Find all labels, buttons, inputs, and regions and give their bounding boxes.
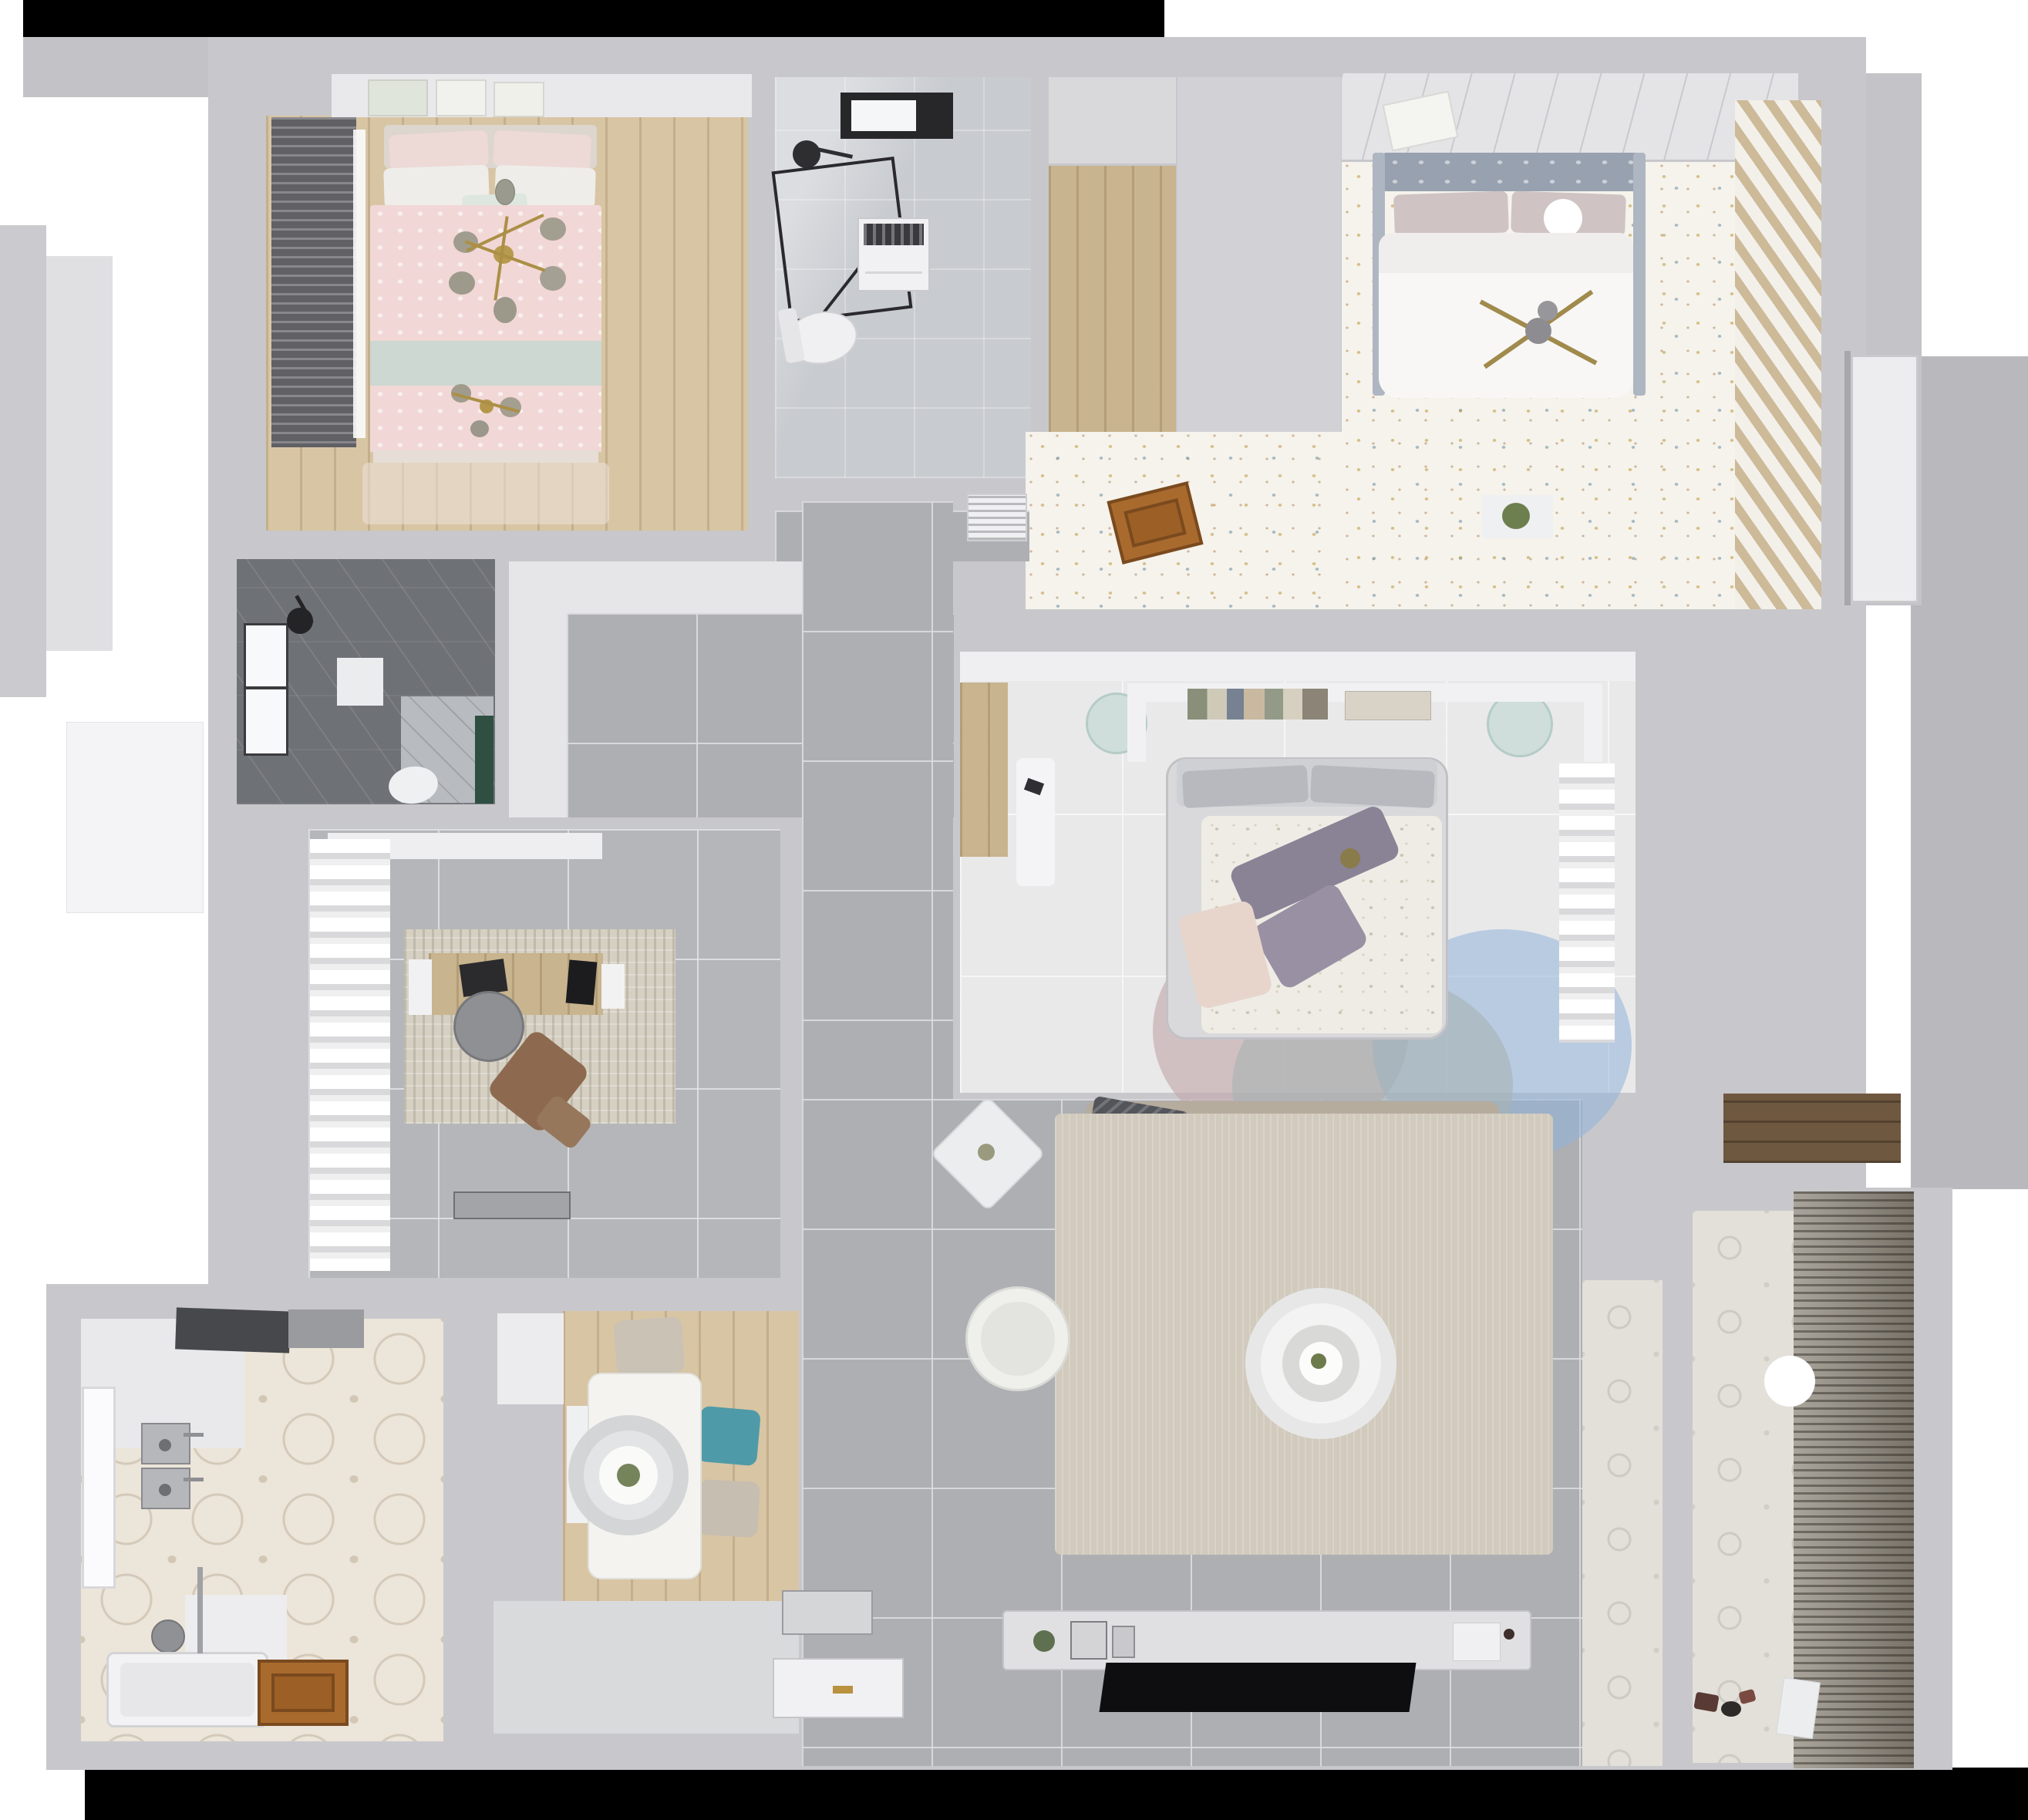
bedroom2-plant [1502, 503, 1530, 529]
backdrop-right [1911, 356, 2028, 1189]
bedroom3-desk [1016, 758, 1055, 886]
chandelier1-bulb-2 [540, 217, 566, 241]
bedroom2-rail-right [1633, 153, 1646, 396]
dining-chair-teal [696, 1406, 761, 1467]
bedroom1-window-blinds [271, 117, 356, 447]
balcony-easel [1776, 1677, 1821, 1739]
bathroom2-window-bar [244, 686, 288, 689]
living-coffee-table-plant [1311, 1353, 1326, 1369]
bathroom3-door [258, 1660, 349, 1726]
bedroom2-ball-lamp [1544, 199, 1582, 238]
living-console-items [1453, 1623, 1501, 1661]
balcony-ceiling-light [1764, 1356, 1815, 1407]
bathroom2-shelf [337, 658, 383, 706]
balcony-toy-2 [1721, 1701, 1741, 1717]
entry-doormat [782, 1590, 873, 1635]
chandelier2-bulb-3 [470, 420, 489, 437]
bathroom1-skylight-glass [851, 100, 916, 131]
living-tv-panel [1100, 1663, 1417, 1712]
living-console-frame-1 [1070, 1621, 1107, 1660]
bedroom3-gold-sprig [1340, 848, 1360, 868]
closet-upper-ceiling [1049, 77, 1176, 163]
bathroom3-bathtub-inner [120, 1663, 254, 1717]
living-console-frame-2 [1112, 1626, 1135, 1658]
bathroom1-shower-head [793, 140, 820, 168]
bathroom2-window [244, 623, 288, 756]
border-band-top [23, 0, 1164, 37]
chandelier1-bulb-6 [494, 297, 517, 323]
bathroom3-window [82, 1387, 116, 1589]
closet-floor [1049, 166, 1176, 455]
bathroom3-knob [151, 1619, 185, 1653]
bedroom1-art-frame-2 [436, 79, 487, 116]
living-console-bottle [1504, 1629, 1514, 1640]
study-monitor [566, 960, 598, 1006]
bathroom3-basin-2-drain [159, 1484, 171, 1496]
dining-cabinet [497, 1313, 564, 1404]
living-armchair-seat [981, 1302, 1055, 1376]
bedroom2-fan-hub-2 [1538, 301, 1558, 321]
study-desk-return [601, 964, 625, 1009]
border-band-bottom [85, 1768, 2028, 1820]
bedroom2-duvet-fold [1379, 233, 1633, 273]
living-console-green-disc [1033, 1630, 1055, 1652]
dining-chair-beige-1 [614, 1316, 686, 1377]
bedroom3-books-stack [1345, 691, 1431, 720]
entry-floor [494, 1601, 799, 1734]
right-hall-door-gap [1844, 351, 1851, 605]
bedroom1-bed-foot [373, 450, 598, 463]
bedroom1-duvet-pink-lower [370, 386, 601, 452]
floor-plan [0, 0, 2028, 1820]
dining-pendant-plant [617, 1464, 640, 1487]
bedroom3-shelf-left [1127, 683, 1146, 762]
bathroom3-tub-filler [197, 1567, 203, 1653]
bedroom2-pillow-1 [1393, 190, 1509, 236]
bedroom1-curtain-sliver [353, 130, 366, 438]
backdrop-strip-left-2 [46, 256, 113, 651]
dining-chair-beige-2 [697, 1479, 760, 1538]
backdrop-strip-left [0, 225, 46, 697]
bedroom2-headboard [1382, 153, 1639, 191]
bedroom2-ac-vent [967, 494, 1027, 541]
bedroom1-art-frame-3 [494, 82, 544, 117]
bedroom3-books [1187, 689, 1328, 720]
bedroom3-wood-strip [960, 682, 1008, 857]
study-desk-panel [409, 959, 432, 1015]
bathroom3-faucet-2 [184, 1478, 204, 1481]
chandelier1-bulb-4 [449, 271, 475, 295]
study-curtain [310, 839, 390, 1271]
bathroom3-basin-1-drain [159, 1439, 171, 1451]
bedroom3-curtain [1559, 763, 1615, 1043]
backdrop-door-left [66, 722, 204, 913]
storage-block [1177, 77, 1341, 457]
bedroom3-pillow-2 [1310, 765, 1435, 808]
bathroom1-washer-line [865, 271, 922, 274]
bedroom3-pillow-1 [1182, 765, 1309, 808]
bedroom1-rug-fade [362, 463, 609, 524]
bedroom3-top-wall-band [960, 652, 1636, 681]
bathroom3-slab-gray [288, 1309, 364, 1348]
bathroom3-faucet-1 [184, 1433, 204, 1437]
bedroom1-art-frame-1 [368, 79, 428, 116]
bedroom2-wardrobe-slats [1735, 100, 1821, 609]
bathroom1-washer-top [864, 224, 924, 245]
passage-pattern-tiles [1582, 1280, 1662, 1766]
study-doormat [453, 1191, 571, 1219]
niche-wood-counter [1723, 1094, 1901, 1163]
chandelier1-bulb-1 [495, 179, 515, 205]
bathroom3-mirror-dark [175, 1307, 291, 1353]
right-hall-door [1851, 355, 1919, 603]
bathroom2-green-panel [475, 716, 494, 804]
living-side-table-item [978, 1144, 995, 1161]
bedroom2-fan-hub [1525, 318, 1551, 344]
entry-door-handles [833, 1686, 853, 1694]
bedroom3-shelf-right [1584, 683, 1602, 762]
study-swivel-chair [453, 991, 524, 1062]
bedroom1-throw-mint [370, 341, 601, 386]
